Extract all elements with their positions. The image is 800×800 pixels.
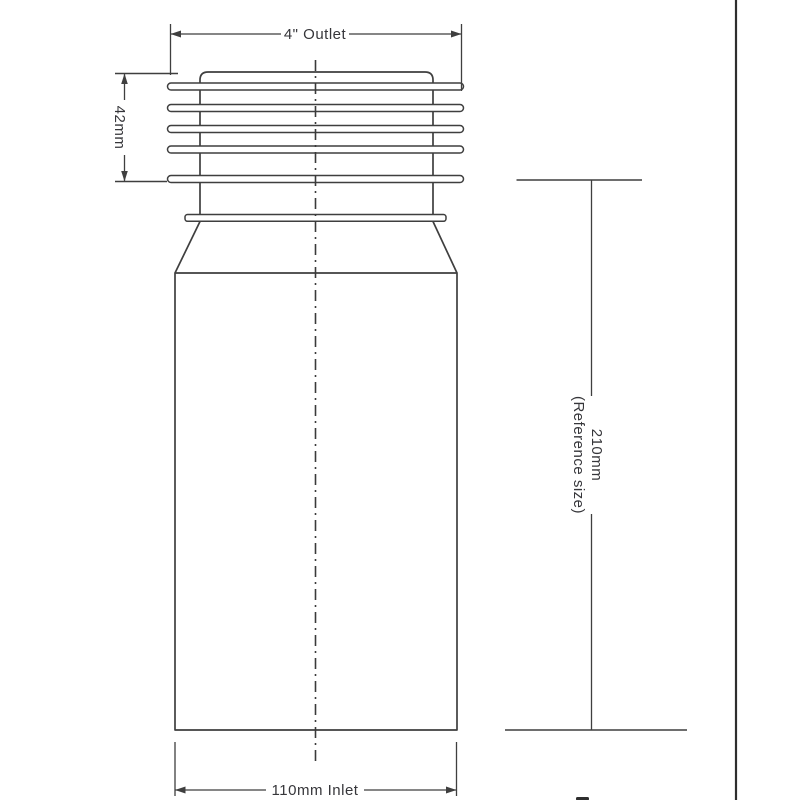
arrowhead-down-icon [121, 171, 128, 182]
seal-fin [168, 146, 464, 153]
arrowhead-up-icon [121, 74, 128, 85]
connector-outline [168, 72, 464, 730]
taper-right-line [433, 222, 457, 274]
inlet-dimension-label: 110mm Inlet [272, 782, 359, 799]
arrowhead-left-icon [175, 787, 186, 794]
dimension-outlet: 4" Outlet [171, 24, 462, 91]
taper-left-line [175, 222, 200, 274]
pan-connector-diagram: 4" Outlet 42mm 210mm (Reference size) [0, 0, 800, 800]
outlet-cap-outline [200, 72, 433, 215]
technical-drawing-canvas: 4" Outlet 42mm 210mm (Reference size) [0, 0, 800, 800]
seal-height-dimension-label: 42mm [111, 106, 128, 150]
reference-height-note-label: (Reference size) [570, 396, 587, 514]
arrowhead-right-icon [451, 31, 462, 38]
dimension-reference-height: 210mm (Reference size) [505, 180, 687, 730]
outlet-dimension-label: 4" Outlet [284, 26, 347, 43]
arrowhead-right-icon [446, 787, 457, 794]
arrowhead-left-icon [171, 31, 182, 38]
reference-height-dimension-label: 210mm [588, 429, 605, 482]
